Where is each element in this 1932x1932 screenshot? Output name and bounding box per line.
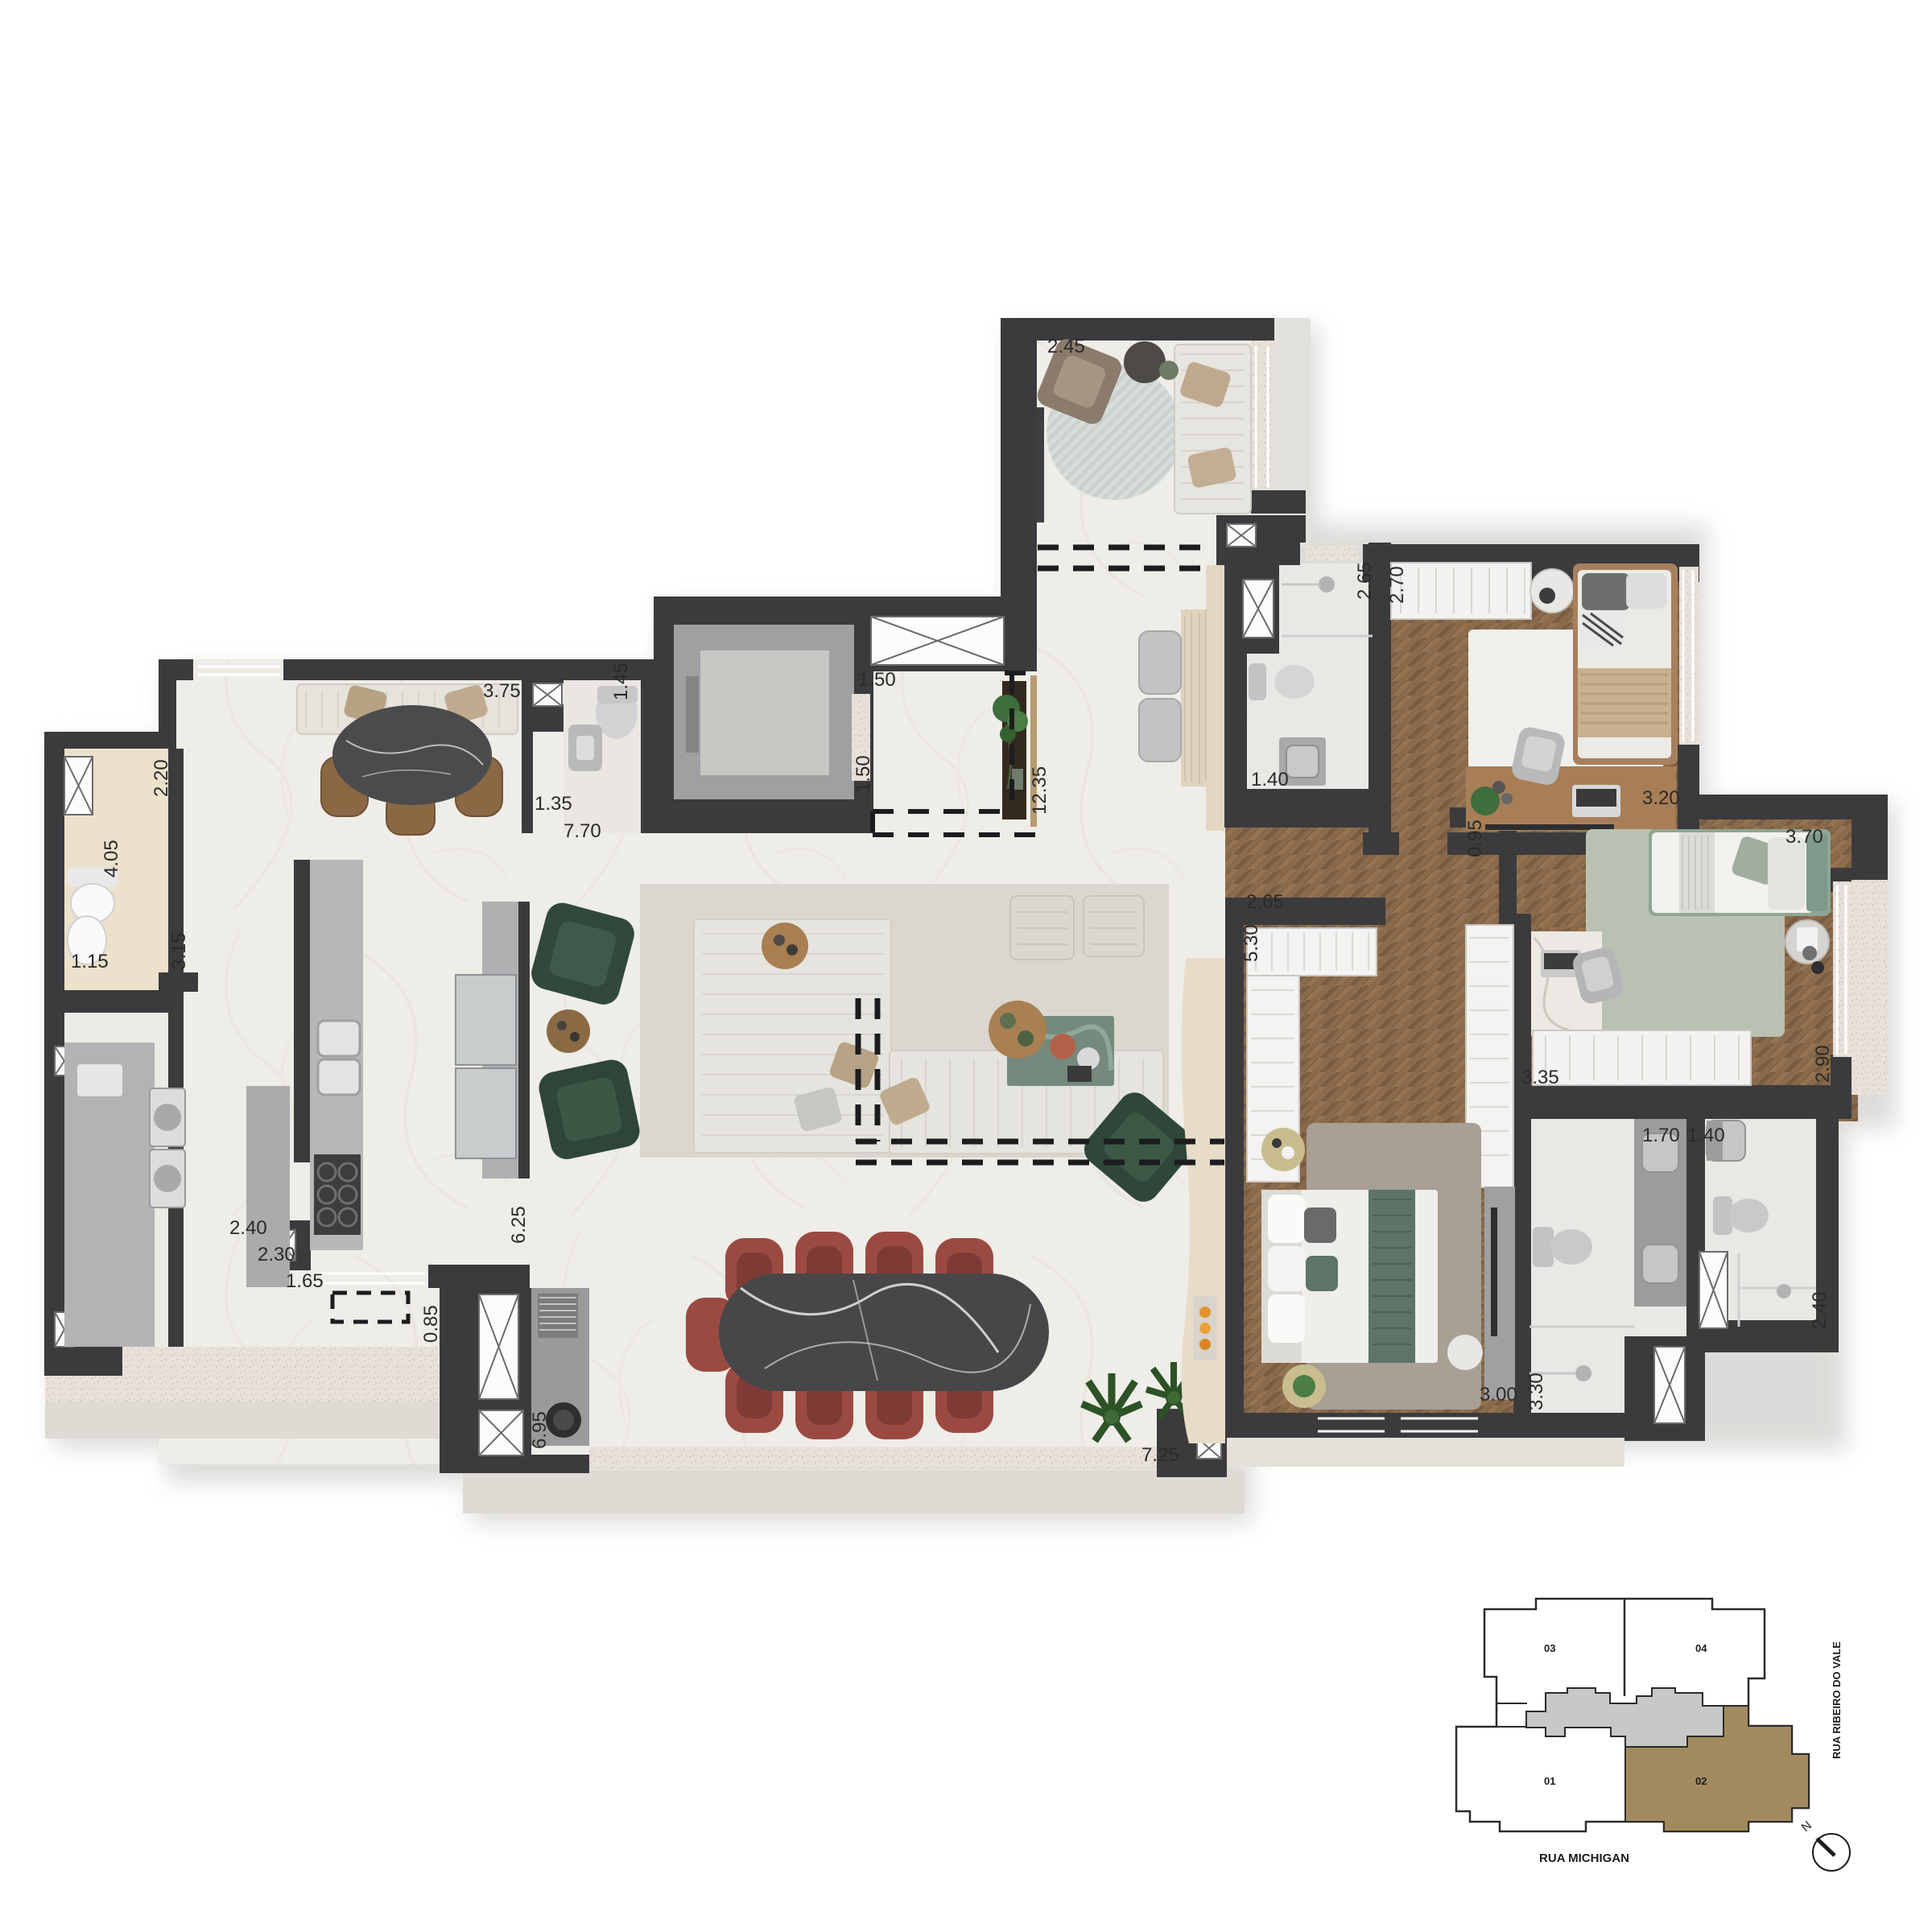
svg-text:6.95: 6.95 xyxy=(529,1411,551,1449)
svg-text:3.35: 3.35 xyxy=(1521,1067,1559,1088)
svg-text:3.70: 3.70 xyxy=(1785,826,1823,848)
svg-text:2.40: 2.40 xyxy=(229,1217,267,1239)
svg-text:1.70: 1.70 xyxy=(1642,1125,1680,1146)
svg-text:1.65: 1.65 xyxy=(286,1270,324,1292)
svg-text:1.35: 1.35 xyxy=(535,793,572,815)
svg-text:5.30: 5.30 xyxy=(1241,924,1262,962)
svg-text:03: 03 xyxy=(1544,1642,1555,1654)
svg-text:1.50: 1.50 xyxy=(858,669,896,691)
svg-text:2.45: 2.45 xyxy=(1047,336,1085,357)
svg-text:RUA RIBEIRO DO VALE: RUA RIBEIRO DO VALE xyxy=(1831,1641,1843,1759)
svg-text:7.25: 7.25 xyxy=(1141,1444,1179,1466)
svg-text:4.05: 4.05 xyxy=(101,840,122,877)
svg-text:RUA MICHIGAN: RUA MICHIGAN xyxy=(1539,1851,1629,1865)
svg-text:01: 01 xyxy=(1544,1775,1555,1787)
svg-text:02: 02 xyxy=(1695,1775,1707,1787)
svg-text:04: 04 xyxy=(1695,1642,1707,1654)
svg-text:1.50: 1.50 xyxy=(852,755,874,793)
svg-text:2.90: 2.90 xyxy=(1812,1045,1834,1083)
svg-text:12.35: 12.35 xyxy=(1029,766,1051,815)
svg-text:2.70: 2.70 xyxy=(1386,566,1408,604)
svg-text:2.30: 2.30 xyxy=(258,1244,295,1265)
svg-text:3.15: 3.15 xyxy=(168,932,190,970)
svg-text:3.00: 3.00 xyxy=(1480,1384,1517,1406)
svg-text:0.95: 0.95 xyxy=(1464,819,1486,857)
svg-text:2.65: 2.65 xyxy=(1354,562,1376,600)
svg-text:2.40: 2.40 xyxy=(1809,1291,1831,1329)
svg-text:1.15: 1.15 xyxy=(71,951,109,972)
svg-text:1.40: 1.40 xyxy=(1251,769,1289,791)
svg-text:0.85: 0.85 xyxy=(420,1305,442,1343)
svg-text:3.75: 3.75 xyxy=(483,680,521,702)
svg-text:2.65: 2.65 xyxy=(1246,891,1284,913)
svg-text:6.25: 6.25 xyxy=(508,1206,530,1244)
svg-text:3.30: 3.30 xyxy=(1525,1373,1547,1410)
svg-text:1.45: 1.45 xyxy=(610,663,632,700)
svg-text:1.40: 1.40 xyxy=(1687,1125,1725,1146)
svg-text:2.20: 2.20 xyxy=(151,759,172,797)
svg-text:7.70: 7.70 xyxy=(563,820,601,842)
svg-text:3.20: 3.20 xyxy=(1642,787,1680,809)
